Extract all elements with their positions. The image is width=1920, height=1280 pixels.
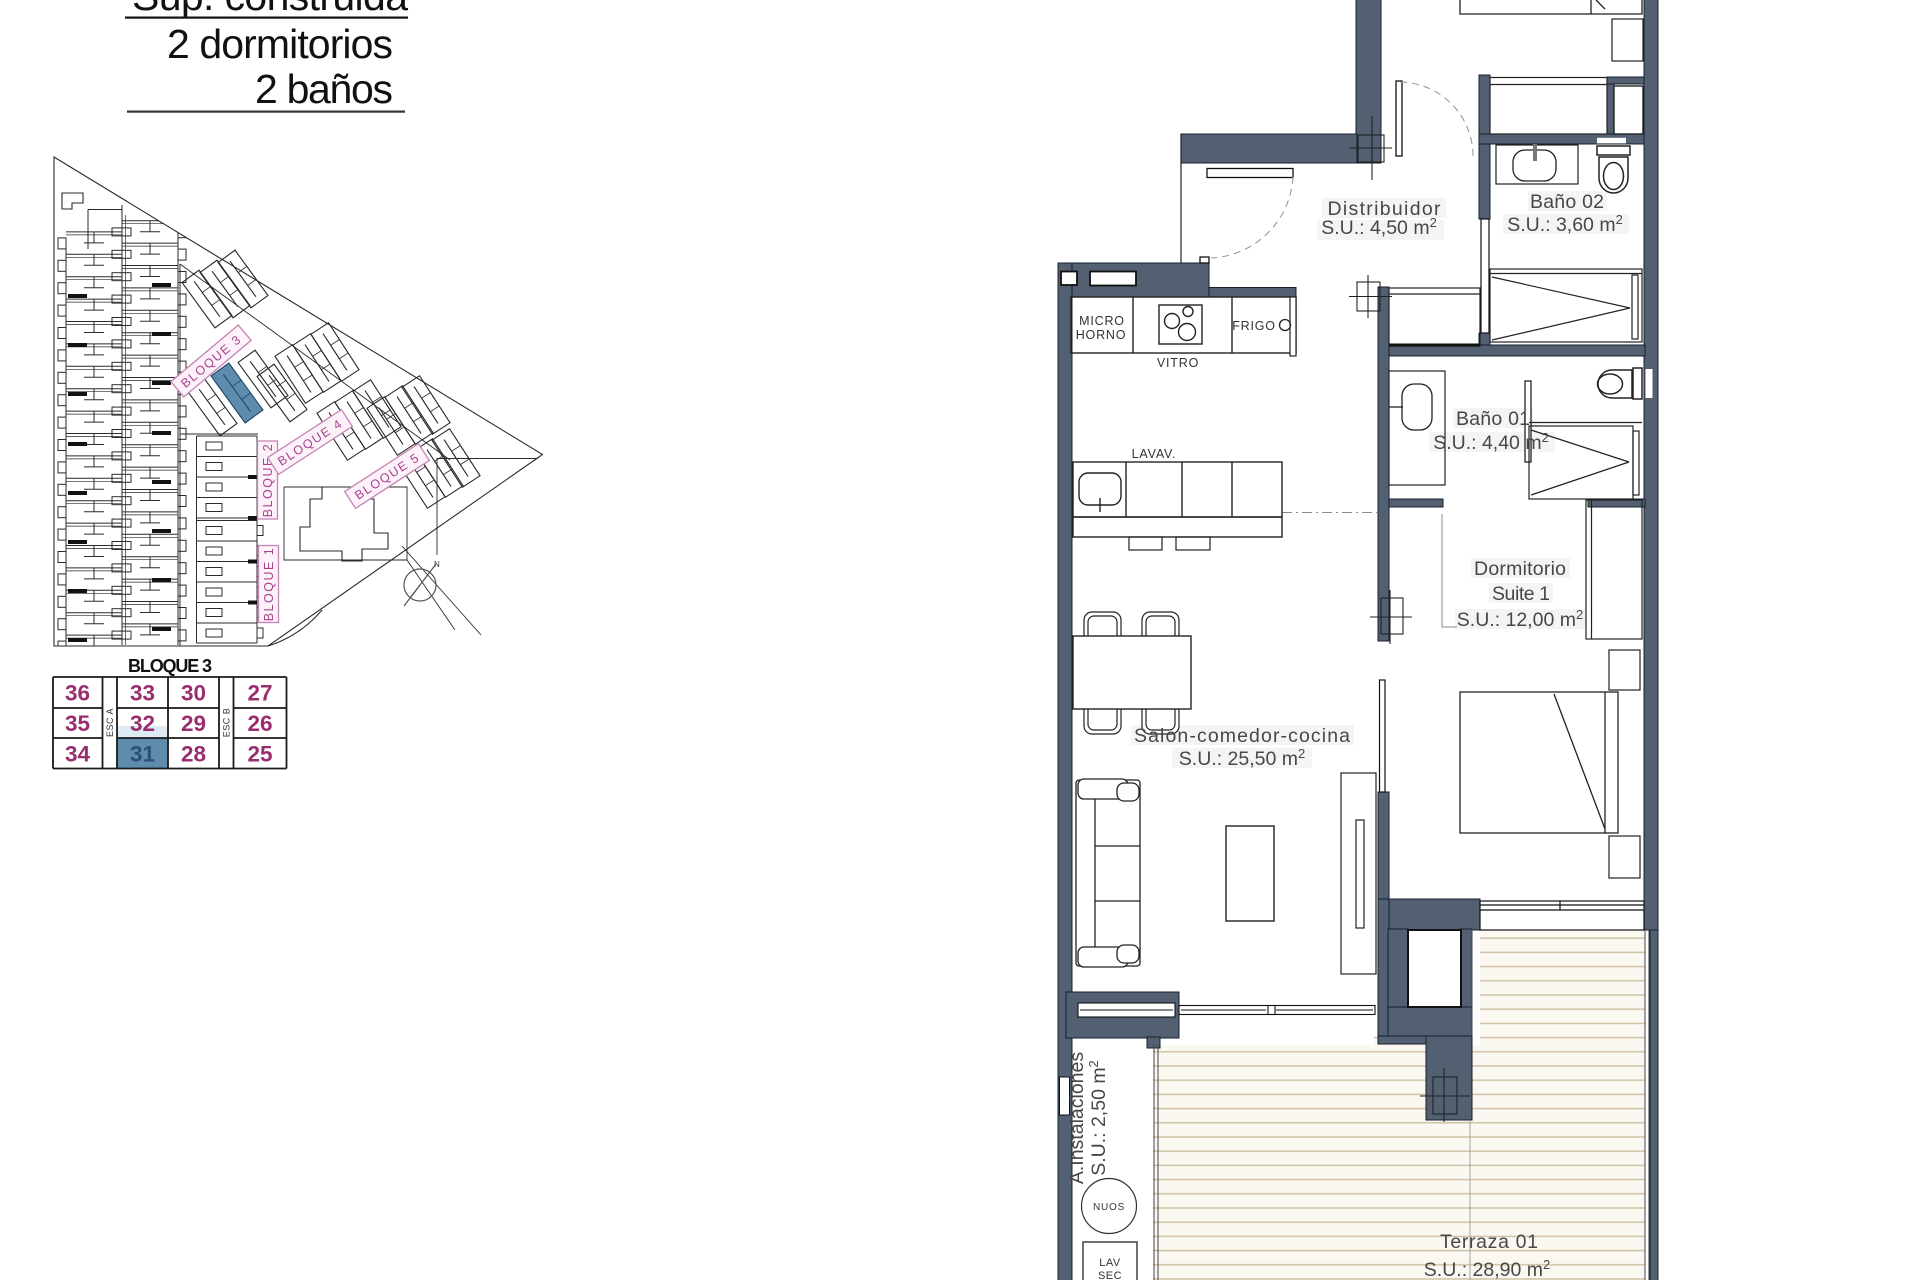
svg-text:30: 30 [181,681,206,706]
svg-text:Baño 01: Baño 01 [1456,408,1530,430]
svg-text:34: 34 [65,742,91,767]
svg-text:31: 31 [130,742,155,767]
svg-text:ESC B: ESC B [222,708,232,738]
svg-text:LAV: LAV [1099,1257,1121,1269]
svg-text:28: 28 [181,742,206,767]
svg-text:S.U.: 4,40 m2: S.U.: 4,40 m2 [1433,430,1549,454]
svg-text:VITRO: VITRO [1157,356,1199,370]
svg-text:MICRO: MICRO [1079,314,1125,328]
svg-text:2 dormitorios: 2 dormitorios [167,21,393,67]
svg-text:FRIGO: FRIGO [1232,319,1276,333]
svg-text:S.U.: 3,60 m2: S.U.: 3,60 m2 [1507,212,1623,236]
svg-text:32: 32 [130,711,155,736]
svg-text:29: 29 [181,711,206,736]
svg-text:S.U.: 12,00 m2: S.U.: 12,00 m2 [1457,607,1583,631]
svg-text:HORNO: HORNO [1076,328,1127,342]
svg-text:Terraza 01: Terraza 01 [1440,1231,1538,1253]
svg-text:26: 26 [247,711,272,736]
svg-text:25: 25 [247,742,272,767]
svg-text:N: N [434,560,440,569]
svg-text:LAVAV.: LAVAV. [1132,447,1177,461]
svg-text:Dormitorio: Dormitorio [1474,558,1566,580]
svg-text:S.U.: 28,90 m2: S.U.: 28,90 m2 [1424,1257,1550,1280]
svg-text:36: 36 [65,681,90,706]
svg-text:S.U.: 4,50 m2: S.U.: 4,50 m2 [1321,215,1437,239]
svg-text:33: 33 [130,681,155,706]
svg-text:35: 35 [65,711,90,736]
svg-text:NUOS: NUOS [1093,1202,1125,1213]
svg-text:S.U.: 25,50 m2: S.U.: 25,50 m2 [1179,746,1305,770]
svg-text:Salon-comedor-cocina: Salon-comedor-cocina [1134,725,1350,747]
svg-text:BLOQUE 1: BLOQUE 1 [262,547,276,622]
svg-text:BLOQUE 3: BLOQUE 3 [128,656,212,676]
svg-text:Baño 02: Baño 02 [1530,191,1604,213]
svg-text:ESC A: ESC A [105,708,115,737]
svg-text:SEC: SEC [1098,1270,1122,1280]
svg-text:27: 27 [247,681,272,706]
svg-text:A.Instalaciones: A.Instalaciones [1066,1052,1088,1184]
svg-text:Sup. construida: Sup. construida [132,0,408,19]
svg-text:2 baños: 2 baños [255,66,393,112]
svg-text:Suite 1: Suite 1 [1492,583,1550,605]
svg-text:S.U.: 2,50 m2: S.U.: 2,50 m2 [1086,1060,1110,1176]
